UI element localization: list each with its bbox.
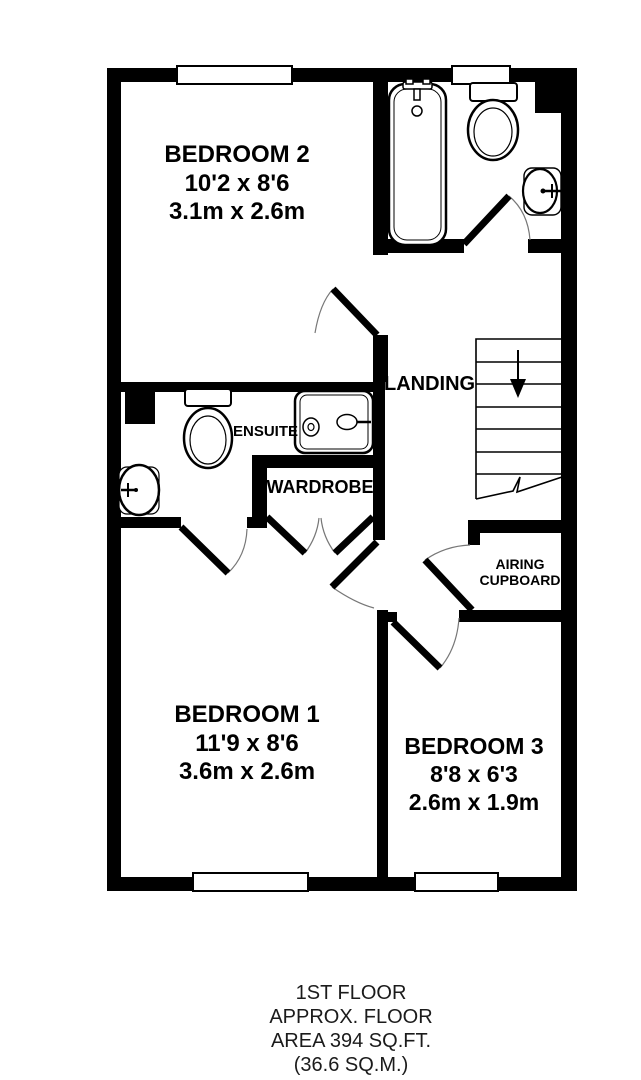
door-arc-bedroom2 [315,289,333,333]
window-bedroom1 [193,873,308,891]
window-bedroom2 [177,66,292,84]
door-arc-bedroom1 [332,587,374,608]
door-arc-airing-cupboard [425,545,470,560]
sink-icon [523,168,561,215]
wall-airing-cupboard-left-stub [468,533,480,545]
wall-right-exterior [561,113,577,891]
footer-line2: APPROX. FLOOR [269,1006,432,1028]
wall-bottom-left [107,877,193,891]
door-leaf-ensuite [181,527,228,573]
floor-plan-drawing: BEDROOM 2 10'2 x 8'6 3.1m x 2.6m LANDING… [0,0,641,1080]
sink-icon [119,465,159,515]
airing-cupboard-label-line2: CUPBOARD [480,572,561,588]
door-leaf-bedroom2 [333,289,377,335]
wall-wardrobe-top [252,455,385,468]
window-bathroom [452,66,510,84]
wall-chimney-notch [125,392,155,424]
bedroom3-metric-label: 2.6m x 1.9m [409,789,539,815]
door-leaf-wardrobe-left [267,517,305,553]
landing-label: LANDING [384,373,475,395]
wall-ensuite-bottom-left [107,517,181,528]
footer-caption: 1ST FLOOR APPROX. FLOOR AREA 394 SQ.FT. … [269,982,432,1076]
door-arc-ensuite [228,529,247,573]
room-labels: BEDROOM 2 10'2 x 8'6 3.1m x 2.6m LANDING… [164,141,560,815]
footer-line3: AREA 394 SQ.FT. [271,1030,431,1052]
toilet-icon [468,83,518,160]
bedroom2-metric-label: 3.1m x 2.6m [169,198,305,225]
stairs-arrow-head [510,379,526,398]
bathtub-icon [389,79,446,245]
wall-airing-cupboard-top [468,520,561,533]
bedroom1-name-label: BEDROOM 1 [174,701,319,728]
wall-bottom-right [498,877,577,891]
wall-bottom-middle [308,877,415,891]
ensuite-label: ENSUITE [233,423,298,440]
bedroom3-imperial-label: 8'8 x 6'3 [430,761,518,787]
wall-top-left [107,68,177,82]
window-bedroom3 [415,873,498,891]
door-arc-wardrobe-right [321,518,335,553]
stairs-icon [476,339,562,499]
footer-line1: 1ST FLOOR [296,982,407,1004]
bedroom3-name-label: BEDROOM 3 [404,733,543,759]
footer-line4: (36.6 SQ.M.) [294,1054,408,1076]
wall-bed3-top [459,610,561,622]
door-leaf-airing-cupboard [425,560,472,610]
door-arc-wardrobe-left [305,518,319,553]
wall-bed1-bed3-divider [377,610,388,877]
bedroom1-metric-label: 3.6m x 2.6m [179,758,315,785]
toilet-icon [184,389,232,468]
wall-top-right-corner-block [535,82,577,113]
wall-top-right [510,68,577,82]
wardrobe-label: WARDROBE [267,477,374,497]
airing-cupboard-label-line1: AIRING [496,556,545,572]
stairs-break-line [476,477,562,499]
door-leaf-bedroom3 [393,622,440,668]
floor-plan-page: BEDROOM 2 10'2 x 8'6 3.1m x 2.6m LANDING… [0,0,641,1080]
bedroom2-imperial-label: 10'2 x 8'6 [185,170,290,197]
bedroom1-imperial-label: 11'9 x 8'6 [195,730,299,757]
bedroom2-name-label: BEDROOM 2 [164,141,309,168]
wall-bed2-bath-divider [373,82,388,255]
door-leaf-bathroom [464,196,509,244]
shower-icon [295,391,373,453]
wall-bathroom-bottom-right [528,239,561,253]
door-arc-bedroom3 [440,618,459,668]
